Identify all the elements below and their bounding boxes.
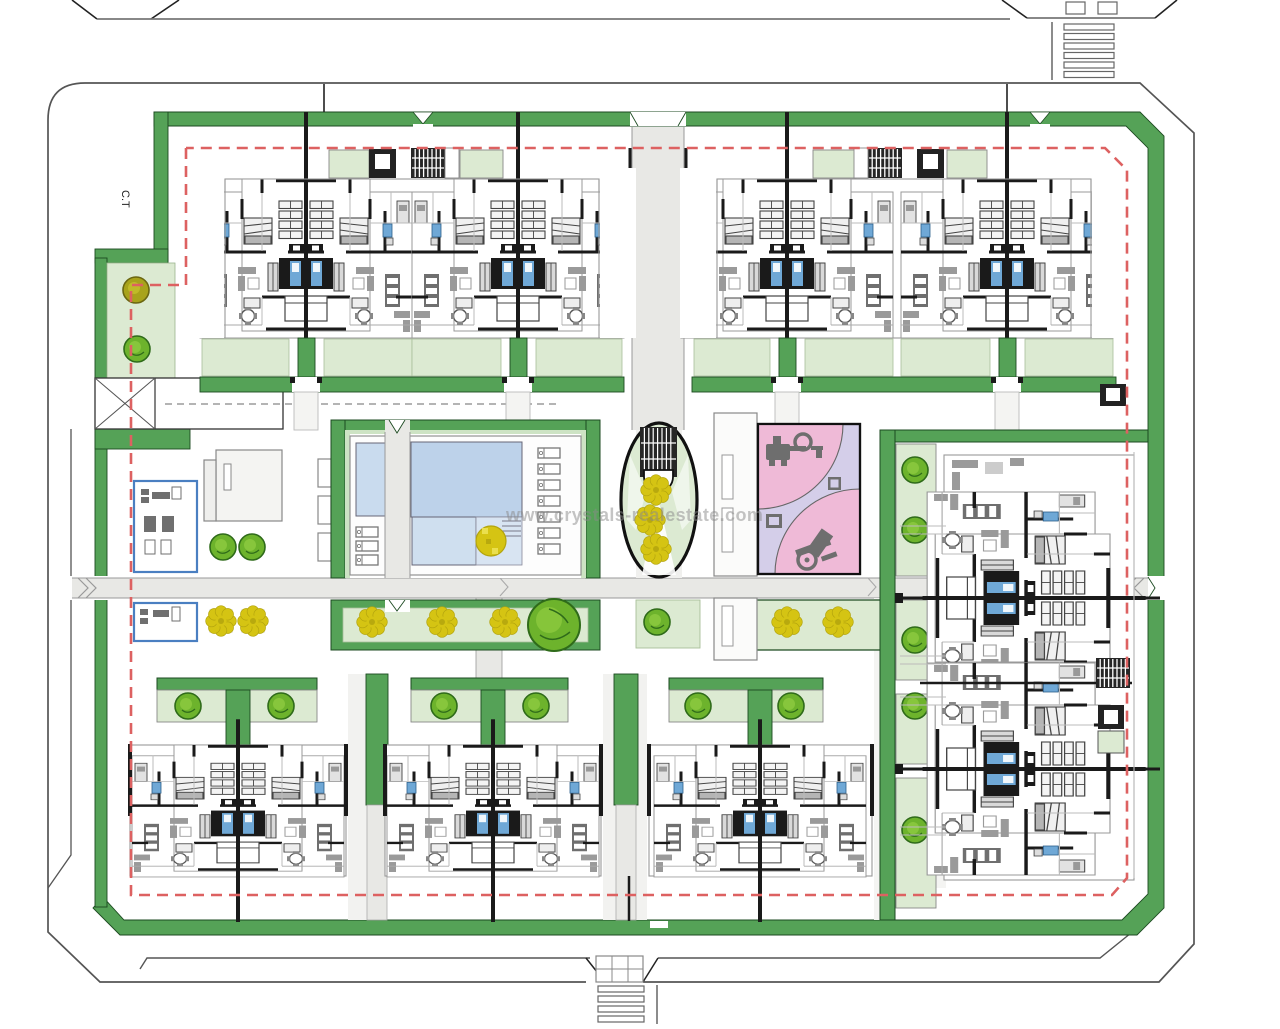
svg-text:www.crystals-realestate.com: www.crystals-realestate.com: [505, 505, 763, 525]
svg-text:C.T: C.T: [119, 190, 131, 208]
